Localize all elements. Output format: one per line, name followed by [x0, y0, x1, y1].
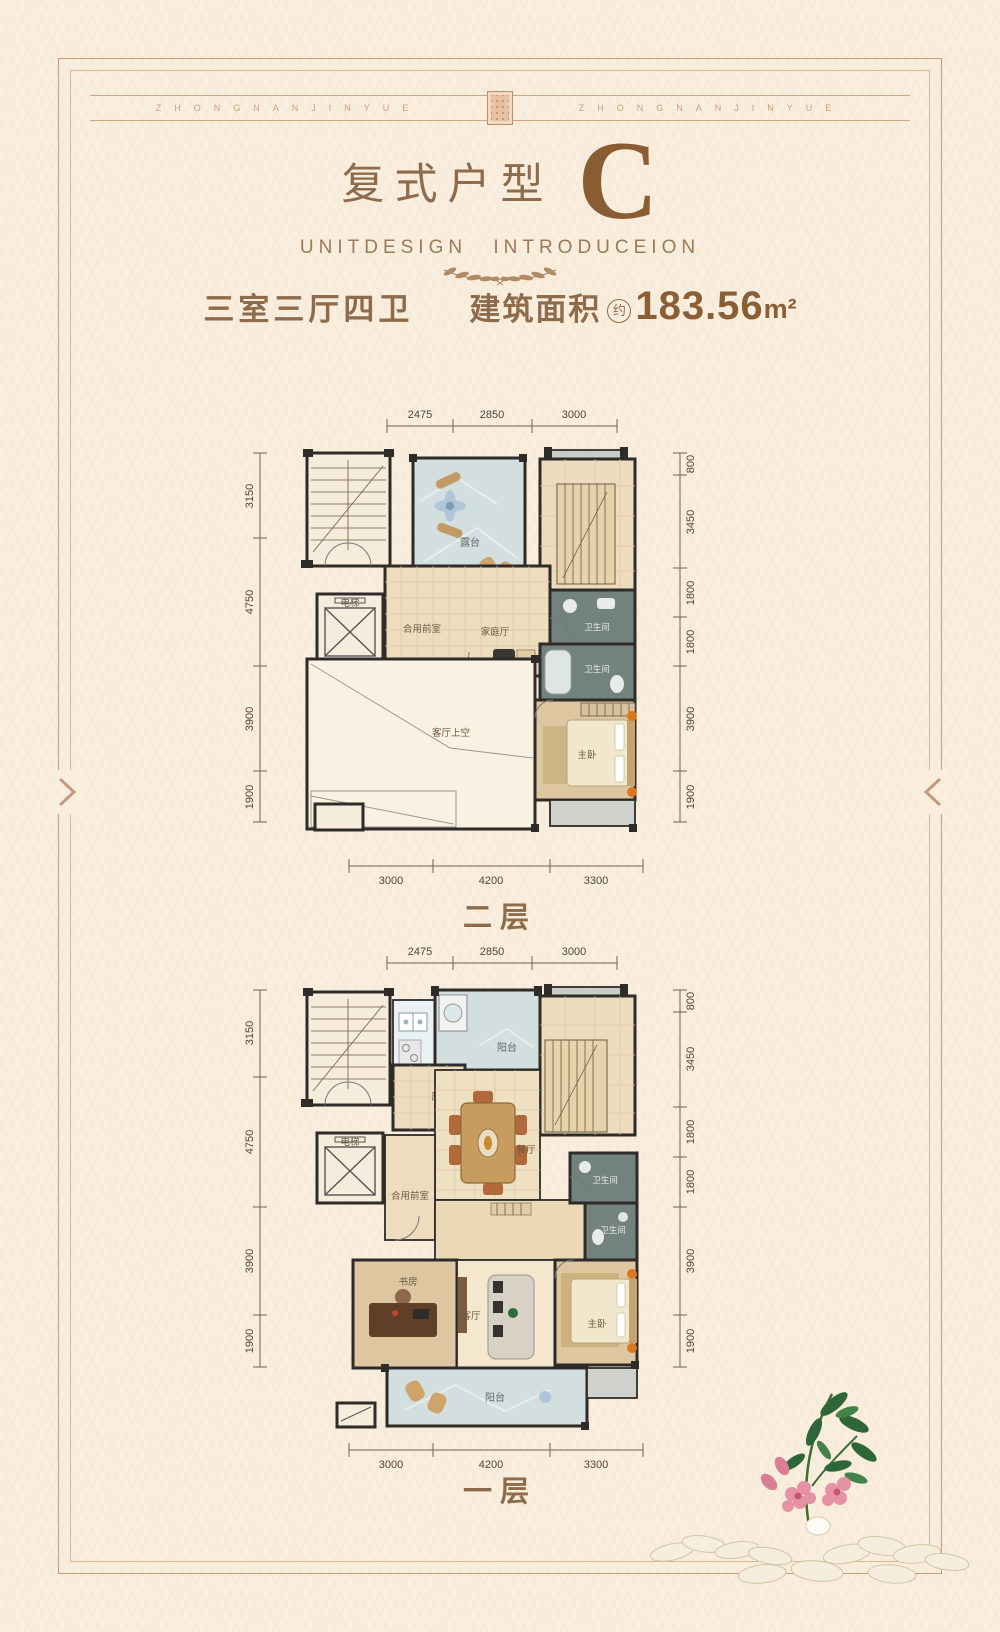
room-count-text: 三室三厅四卫 — [203, 284, 413, 329]
svg-text:3900: 3900 — [685, 1249, 697, 1273]
svg-text:卫生间: 卫生间 — [592, 1175, 618, 1185]
svg-text:合用前室: 合用前室 — [391, 1190, 429, 1202]
svg-text:800: 800 — [685, 992, 697, 1010]
dims-bottom: 3000 4200 3300 — [349, 1443, 643, 1471]
svg-text:2475: 2475 — [408, 946, 432, 958]
room-balcony-top: 阳台 — [435, 990, 540, 1070]
room-foyer: 合用前室 — [385, 1135, 435, 1240]
svg-text:2475: 2475 — [408, 409, 432, 421]
chevron-right-icon — [52, 770, 82, 814]
svg-text:4200: 4200 — [479, 875, 503, 887]
room-living: 客厅 — [457, 1260, 555, 1368]
page-title: 复式户型 — [342, 150, 554, 212]
svg-text:主卧: 主卧 — [577, 749, 597, 761]
svg-text:露台: 露台 — [460, 536, 480, 549]
svg-text:4750: 4750 — [245, 590, 256, 614]
approx-badge: 约 — [607, 299, 631, 323]
room-bath1: 卫生间 — [570, 1153, 637, 1203]
svg-text:客厅上空: 客厅上空 — [432, 727, 470, 739]
room-master: 主卧 — [535, 700, 637, 800]
svg-text:3900: 3900 — [685, 707, 697, 731]
svg-text:3450: 3450 — [685, 1047, 697, 1071]
room-bath1: 卫生间 — [550, 590, 635, 644]
unit-letter: C — [578, 128, 659, 234]
svg-text:1800: 1800 — [685, 581, 697, 605]
svg-text:阳台: 阳台 — [497, 1041, 517, 1054]
room-dining: 餐厅 — [435, 1070, 540, 1200]
svg-text:1800: 1800 — [685, 1170, 697, 1194]
svg-text:1900: 1900 — [245, 785, 256, 809]
svg-text:2850: 2850 — [480, 409, 504, 421]
svg-text:3900: 3900 — [245, 707, 256, 731]
common-stairwell — [307, 453, 390, 566]
poster-page: ZHONGNANJINYUE ZHONGNANJINYUE 复式户型 C UNI… — [0, 0, 1000, 1632]
svg-text:餐厅: 餐厅 — [516, 1144, 536, 1156]
svg-text:1900: 1900 — [685, 785, 697, 809]
top-ornament-band: ZHONGNANJINYUE ZHONGNANJINYUE — [90, 95, 910, 121]
svg-text:合用前室: 合用前室 — [403, 623, 441, 635]
svg-text:3300: 3300 — [584, 875, 608, 887]
room-study: 书房 — [353, 1260, 457, 1368]
svg-text:书房: 书房 — [398, 1276, 417, 1288]
medallion-icon — [487, 91, 513, 125]
page-subtitle: UNITDESIGN INTRODUCEION — [0, 237, 1000, 259]
band-text-right: ZHONGNANJINYUE — [513, 103, 910, 113]
area-label: 建筑面积 — [469, 284, 601, 329]
area-unit: m² — [764, 294, 797, 325]
corner-box — [337, 1403, 375, 1427]
spec-line: 三室三厅四卫 建筑面积 约 183.56 m² — [0, 284, 1000, 329]
dims-right: 800 3450 1800 1800 3900 1900 — [673, 990, 697, 1367]
common-stairwell — [307, 992, 390, 1105]
floor-plan-second-svg: 2475 2850 3000 3150 4750 3900 1900 800 3… — [245, 406, 725, 896]
floor-plan-second: 2475 2850 3000 3150 4750 3900 1900 800 3… — [245, 406, 725, 901]
room-elevator: 电梯 — [317, 1133, 383, 1203]
svg-text:3000: 3000 — [562, 409, 586, 421]
svg-text:卫生间: 卫生间 — [584, 622, 610, 632]
svg-text:家庭厅: 家庭厅 — [481, 626, 510, 638]
svg-text:主卧: 主卧 — [587, 1318, 607, 1330]
svg-text:1900: 1900 — [685, 1329, 697, 1353]
dims-bottom: 3000 4200 3300 — [349, 859, 643, 887]
svg-text:1900: 1900 — [245, 1329, 256, 1353]
svg-text:1800: 1800 — [685, 1120, 697, 1144]
corner-box — [315, 804, 363, 830]
svg-text:4750: 4750 — [245, 1130, 256, 1154]
svg-text:客厅: 客厅 — [461, 1310, 481, 1322]
dims-left: 3150 4750 3900 1900 — [245, 990, 267, 1367]
room-balcony-bottom: 阳台 — [387, 1368, 587, 1426]
svg-text:卫生间: 卫生间 — [600, 1225, 626, 1235]
svg-text:2850: 2850 — [480, 946, 504, 958]
master-window-strip — [587, 1368, 637, 1398]
dims-top: 2475 2850 3000 — [387, 946, 617, 970]
svg-text:3150: 3150 — [245, 484, 256, 508]
svg-text:卫生间: 卫生间 — [584, 664, 610, 674]
svg-text:电梯: 电梯 — [340, 1136, 360, 1148]
room-elevator: 电梯 — [317, 594, 383, 664]
area-value: 183.56 — [635, 284, 763, 329]
flower-decoration — [642, 1366, 972, 1606]
svg-text:电梯: 电梯 — [340, 597, 360, 609]
interior-stair-hall — [540, 996, 635, 1135]
room-master: 主卧 — [555, 1260, 637, 1365]
room-bath2: 卫生间 — [585, 1203, 637, 1260]
svg-text:3150: 3150 — [245, 1021, 256, 1045]
chevron-left-icon — [918, 770, 948, 814]
room-bath2: 卫生间 — [540, 644, 635, 700]
interior-stair-hall — [540, 459, 635, 593]
svg-text:3000: 3000 — [562, 946, 586, 958]
svg-text:3900: 3900 — [245, 1249, 256, 1273]
band-text-left: ZHONGNANJINYUE — [90, 103, 487, 113]
master-balcony-strip — [550, 800, 635, 826]
floor-label-second: 二层 — [0, 894, 1000, 936]
title-row: 复式户型 C — [0, 128, 1000, 234]
corridor — [435, 1200, 585, 1260]
svg-text:1800: 1800 — [685, 630, 697, 654]
dims-top: 2475 2850 3000 — [387, 409, 617, 433]
dims-right: 800 3450 1800 1800 3900 1900 — [673, 453, 697, 822]
dims-left: 3150 4750 3900 1900 — [245, 453, 267, 822]
svg-text:阳台: 阳台 — [485, 1391, 505, 1404]
svg-text:3450: 3450 — [685, 510, 697, 534]
svg-text:800: 800 — [685, 455, 697, 473]
svg-text:3000: 3000 — [379, 875, 403, 887]
